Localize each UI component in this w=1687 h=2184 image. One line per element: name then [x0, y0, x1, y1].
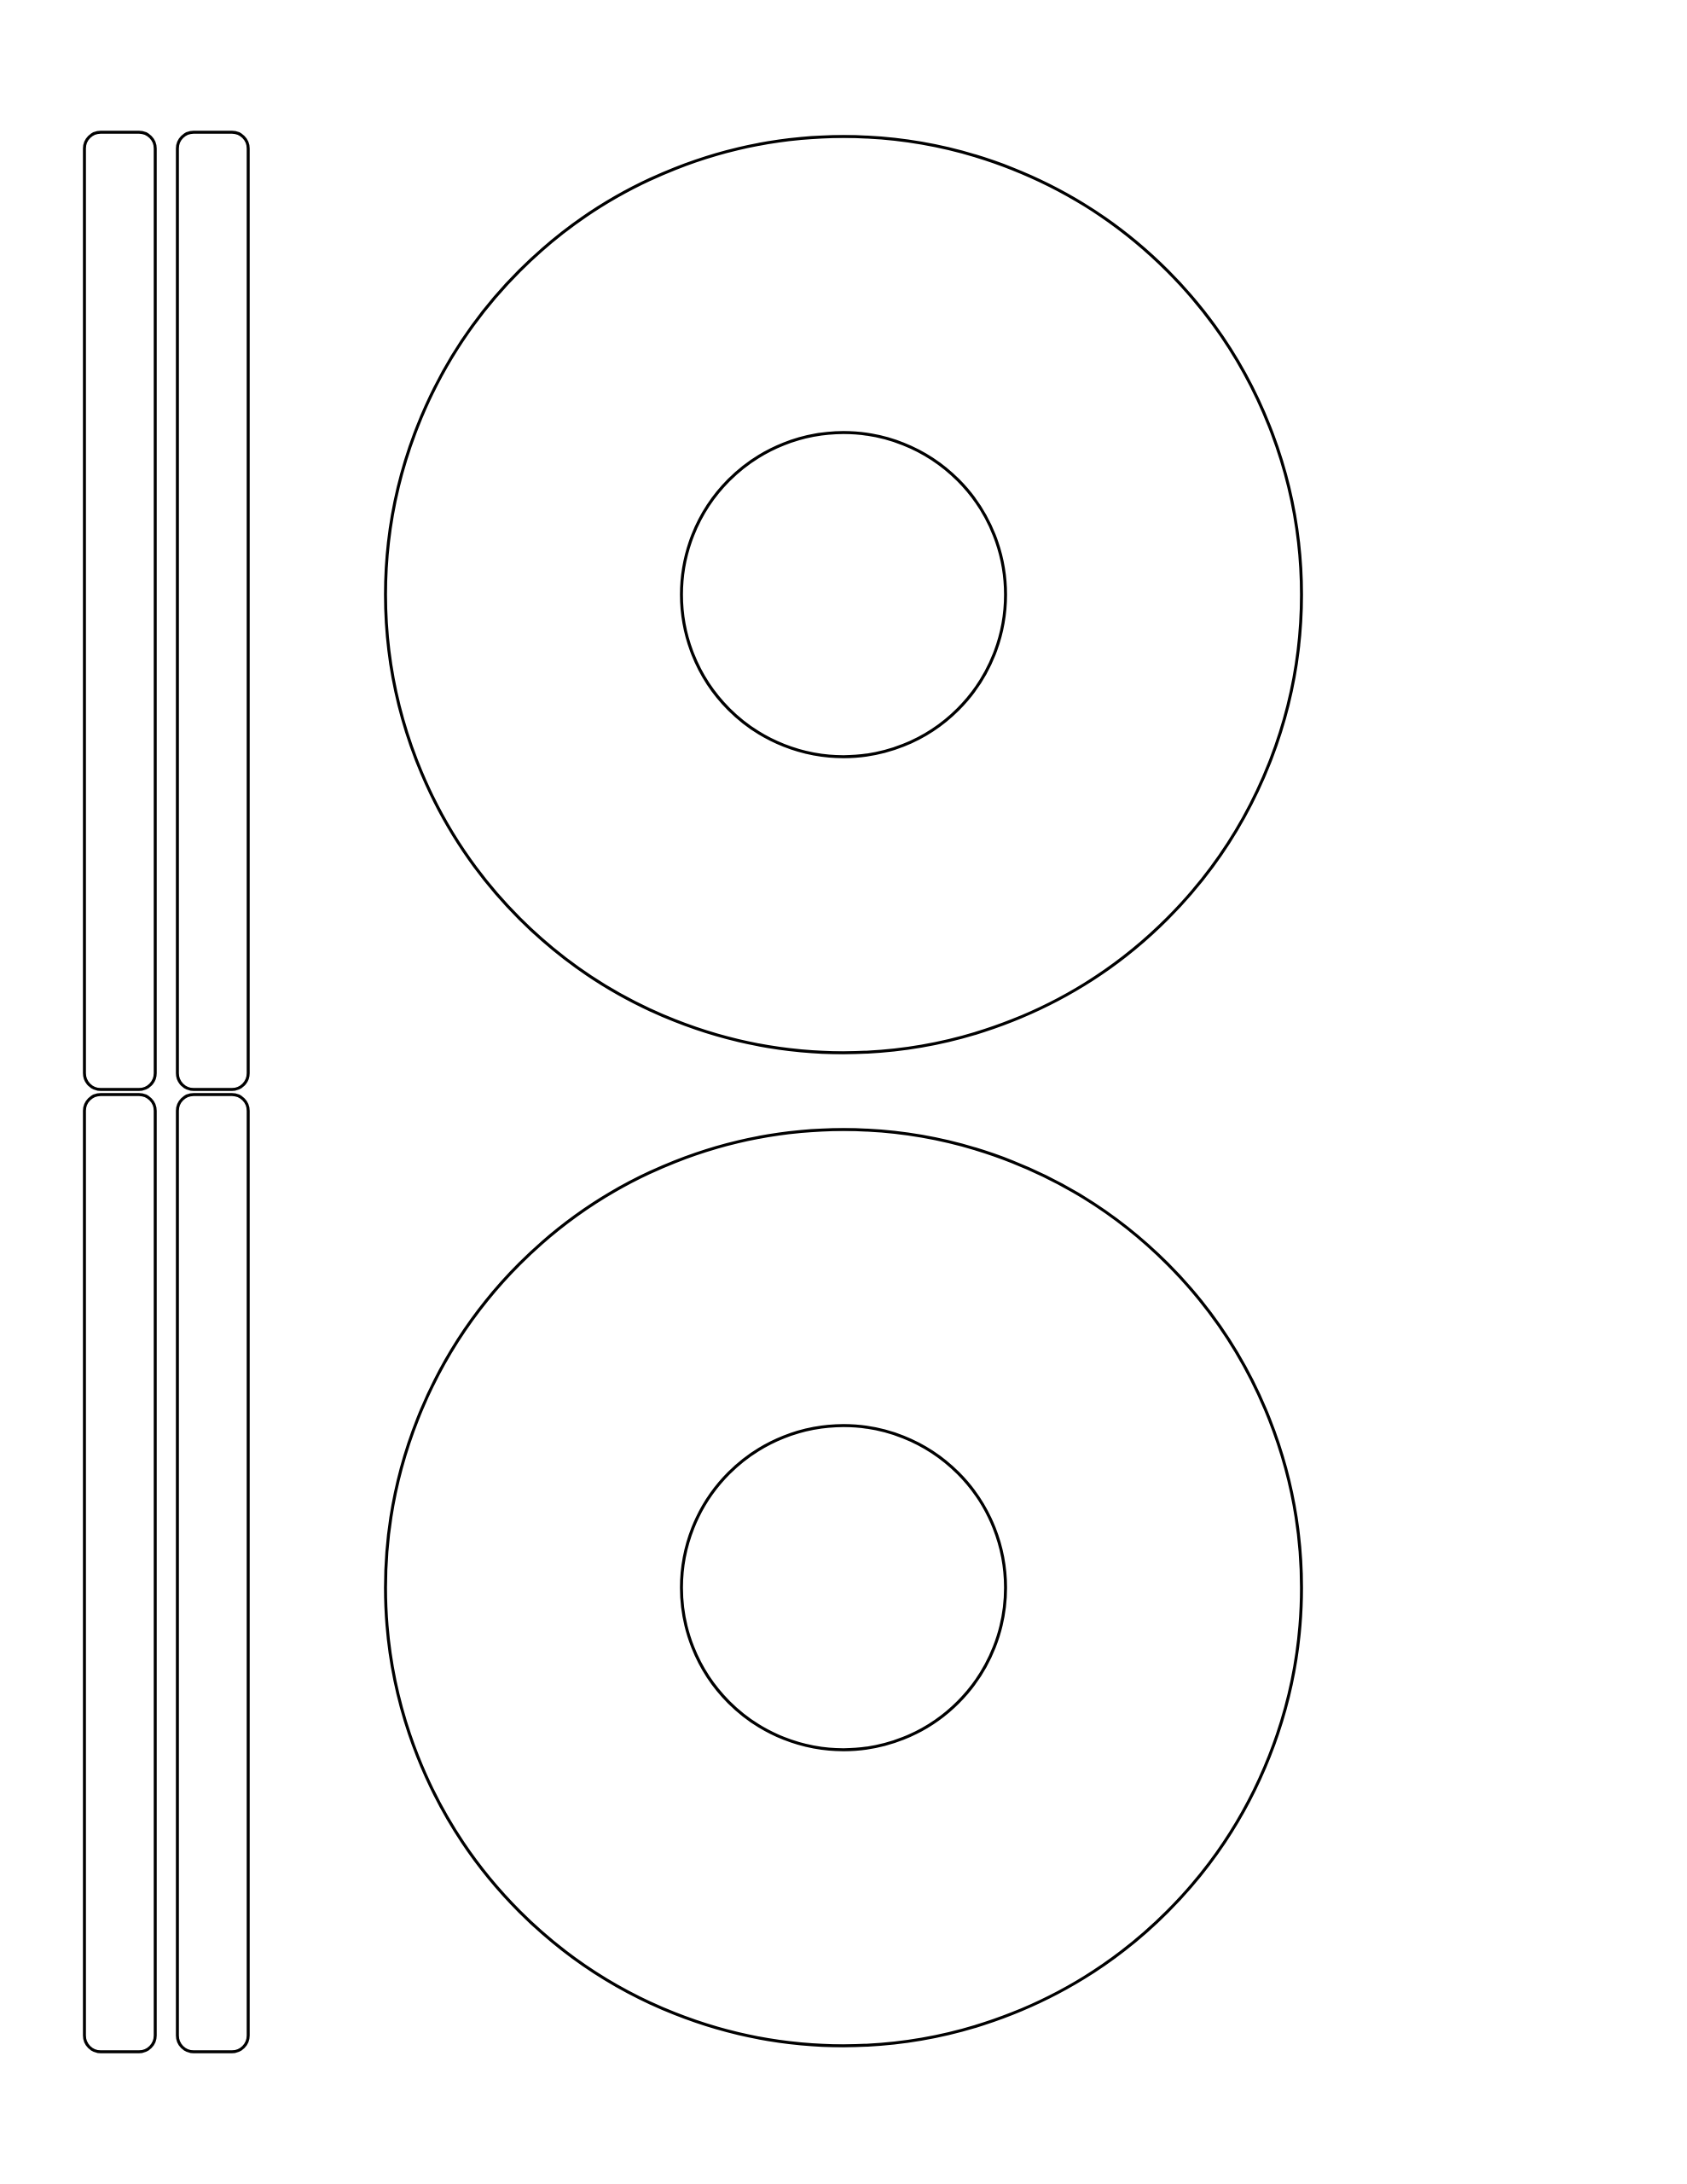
label-template-page: [0, 0, 1687, 2184]
label-sheet-canvas: [0, 0, 1687, 2184]
disc-label-top-center-hole: [681, 433, 1006, 757]
disc-label-bottom-center-hole: [681, 1426, 1006, 1750]
disc-label-bottom-outline: [386, 1130, 1301, 2046]
disc-label-top-outline: [386, 136, 1301, 1053]
spine-label-top-right-outline: [177, 132, 248, 1089]
spine-label-top-left-outline: [84, 132, 155, 1089]
spine-label-bottom-right-outline: [177, 1095, 248, 2052]
spine-label-bottom-left-outline: [84, 1095, 155, 2052]
